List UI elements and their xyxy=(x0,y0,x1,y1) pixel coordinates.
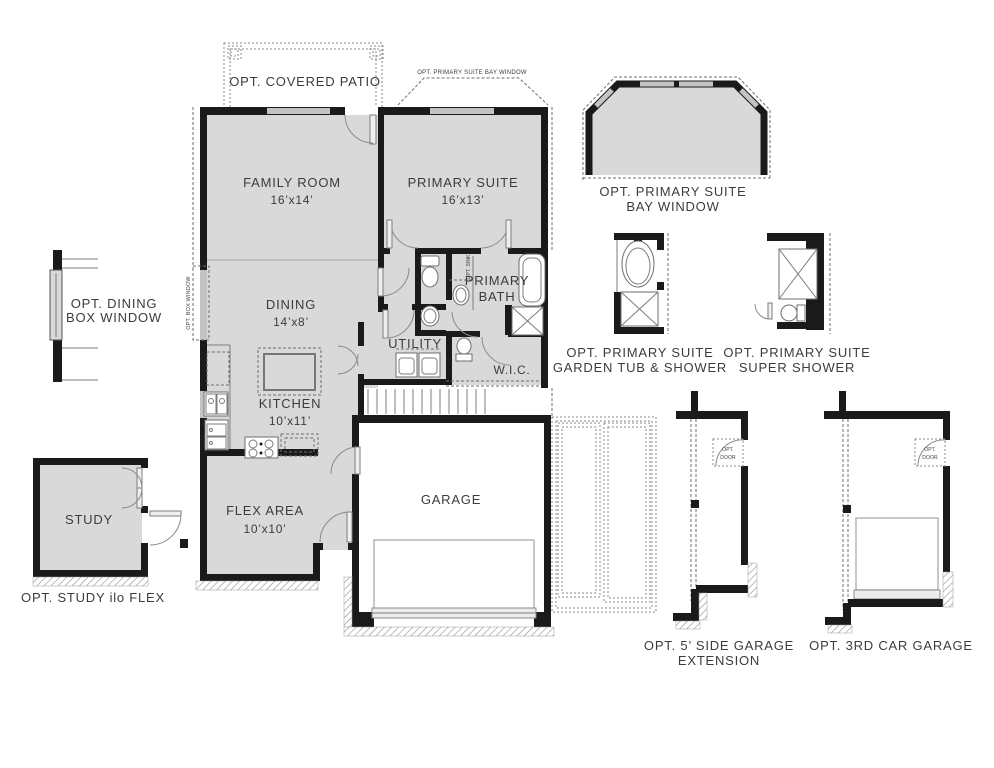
garage-entry-leaf xyxy=(355,447,360,474)
wall-right xyxy=(541,107,548,388)
covered-patio-label: OPT. COVERED PATIO xyxy=(229,74,381,89)
box-window-note: OPT. BOX WINDOW xyxy=(186,276,192,330)
opt-covered-patio: OPT. COVERED PATIO xyxy=(224,43,383,108)
toilet-bowl xyxy=(781,305,797,321)
super-shower-label-1: OPT. PRIMARY SUITE xyxy=(723,345,870,360)
family-window xyxy=(267,108,330,114)
garage-right-wall xyxy=(544,415,551,627)
bay-window-detail-label-2: BAY WINDOW xyxy=(626,199,719,214)
toilet-tank xyxy=(797,305,805,321)
powder-sink xyxy=(421,306,439,326)
opt-door-note-2a: OPT. xyxy=(924,447,936,453)
opt-door-note-1a: OPT. xyxy=(722,447,734,453)
super-shower-label-2: SUPER SHOWER xyxy=(739,360,855,375)
wall-family-primary xyxy=(378,107,384,253)
study-ilo-flex-caption: OPT. STUDY ilo FLEX xyxy=(21,590,165,605)
wic-label: W.I.C. xyxy=(494,363,531,377)
dining-label: DINING xyxy=(266,297,316,312)
opt-bay-window-detail: OPT. PRIMARY SUITE BAY WINDOW xyxy=(583,77,770,214)
shower xyxy=(505,305,543,335)
dining-box-window xyxy=(200,270,207,340)
primary-bath-label-2: BATH xyxy=(479,289,516,304)
powder-toilet xyxy=(421,256,439,287)
floor-plan-page: OPT. COVERED PATIO xyxy=(0,0,994,768)
dining-dims: 14’x8’ xyxy=(273,315,309,329)
opt-super-shower-detail: OPT. PRIMARY SUITE SUPER SHOWER xyxy=(723,233,870,375)
primary-window xyxy=(430,108,494,114)
third-car-garage-label: OPT. 3RD CAR GARAGE xyxy=(809,638,973,653)
garage-door xyxy=(372,540,536,618)
kitchen-dims: 10’x11’ xyxy=(269,414,311,428)
study-exterior-door-leaf xyxy=(150,511,181,516)
flex-area-label: FLEX AREA xyxy=(226,503,304,518)
family-room-dims: 16’x14’ xyxy=(270,193,313,207)
third-car-stall xyxy=(856,518,938,590)
dining-box-window-label-1: OPT. DINING xyxy=(71,296,158,311)
stairs-area xyxy=(364,388,541,415)
water-closet-toilet xyxy=(456,338,472,361)
garage-top-wall xyxy=(352,415,551,423)
wall-left xyxy=(200,107,207,581)
garage-extension-footprint xyxy=(552,417,656,612)
opt-study-detail: STUDY OPT. STUDY ilo FLEX xyxy=(21,458,188,605)
flex-area-dims: 10’x10’ xyxy=(243,522,286,536)
patio-door-leaf xyxy=(370,115,376,144)
primary-suite-dims: 16’x13’ xyxy=(441,193,484,207)
primary-suite-label: PRIMARY SUITE xyxy=(408,175,519,190)
main-floor-plan: OPT. PRIMARY SUITE BAY WINDOW OPT. BOX W… xyxy=(186,70,554,636)
front-porch xyxy=(320,550,356,577)
opt-door-note-1b: DOOR xyxy=(720,455,736,461)
opt-side-garage-extension-detail: OPT. DOOR OPT. 5’ SIDE GARAGE EXTENSION xyxy=(644,391,794,668)
garden-tub-label-2: GARDEN TUB & SHOWER xyxy=(553,360,727,375)
primary-bath-label-1: PRIMARY xyxy=(465,273,529,288)
opt-door-note-2b: DOOR xyxy=(922,455,938,461)
floor-plan-drawing: OPT. COVERED PATIO xyxy=(0,0,994,768)
opt-garden-tub-detail: OPT. PRIMARY SUITE GARDEN TUB & SHOWER xyxy=(553,233,727,375)
garden-tub-label-1: OPT. PRIMARY SUITE xyxy=(566,345,713,360)
side-garage-extension-label-2: EXTENSION xyxy=(678,653,760,668)
garage-label: GARAGE xyxy=(421,492,481,507)
side-garage-extension-label-1: OPT. 5’ SIDE GARAGE xyxy=(644,638,794,653)
opt-dining-box-window-detail: OPT. DINING BOX WINDOW xyxy=(50,250,162,382)
front-door-leaf xyxy=(347,512,352,542)
bay-window-detail-label-1: OPT. PRIMARY SUITE xyxy=(599,184,746,199)
opt-third-car-garage-detail: OPT. DOOR OPT. 3RD CAR GARAGE xyxy=(809,391,973,653)
family-room-label: FAMILY ROOM xyxy=(243,175,341,190)
utility-label: UTILITY xyxy=(388,336,442,351)
kitchen-label: KITCHEN xyxy=(259,396,322,411)
bay-window-note: OPT. PRIMARY SUITE BAY WINDOW xyxy=(417,70,527,76)
dining-box-window-label-2: BOX WINDOW xyxy=(66,310,162,325)
study-label: STUDY xyxy=(65,512,113,527)
